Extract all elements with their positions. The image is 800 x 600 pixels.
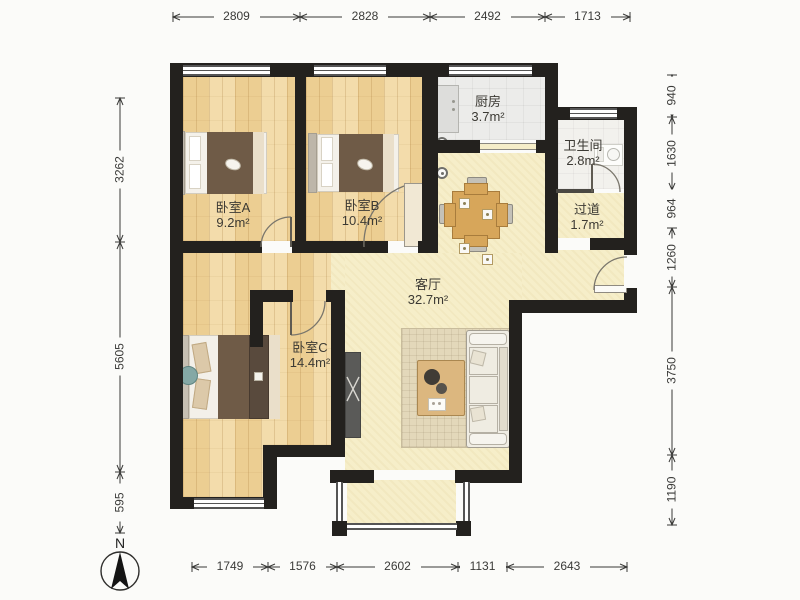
wall-bedrooms-bottom [292, 241, 388, 253]
bed-b-pillow [321, 163, 333, 187]
entry-door-opening [624, 255, 637, 288]
wall-bedroom-c-door [326, 290, 345, 302]
dimension-label-right-1: 1630 [665, 134, 680, 172]
plate-icon [459, 198, 470, 209]
plate-icon [459, 243, 470, 254]
dimension-line [173, 14, 180, 20]
dimension-line [669, 287, 675, 294]
room-name: 厨房 [443, 94, 533, 109]
floor-corridor [331, 253, 345, 290]
bed-c-dresser-knob [254, 372, 263, 381]
room-area: 1.7m² [542, 217, 632, 232]
wall-bedroom-c-door [263, 290, 293, 302]
dimension-line [117, 465, 123, 472]
bay-window-bottom [347, 523, 457, 530]
room-area: 2.8m² [538, 153, 628, 168]
window-kitchen [449, 65, 532, 76]
dimension-line [507, 564, 514, 570]
wall-bathroom-bottom [556, 189, 594, 193]
dimension-line [117, 235, 123, 242]
dimension-label-right-2: 964 [665, 190, 680, 228]
compass-circle [101, 552, 139, 590]
room-name: 卫生间 [538, 138, 628, 153]
plate-icon [482, 209, 493, 220]
wall-bedroom-divider [295, 63, 306, 253]
wall-spur [250, 290, 263, 347]
dimension-line [669, 518, 675, 525]
dimension-line [669, 455, 675, 462]
dimension-label-left-2: 595 [113, 483, 128, 521]
dimension-line [623, 14, 630, 20]
dimension-line [268, 564, 275, 570]
wall-entry-bottom [512, 300, 637, 313]
room-area: 14.4m² [265, 355, 355, 370]
table-decor [436, 383, 447, 394]
room-name: 客厅 [383, 277, 473, 292]
dimension-line [330, 564, 337, 570]
dimension-line [293, 14, 300, 20]
room-area: 9.2m² [188, 215, 278, 230]
room-name: 卧室B [317, 198, 407, 213]
wall-living-right [509, 300, 522, 483]
dimension-label-bottom-1: 1576 [280, 559, 326, 574]
tray-dot [438, 402, 441, 405]
dimension-line [261, 564, 268, 570]
dimension-label-left-1: 5605 [113, 338, 128, 376]
dimension-label-bottom-3: 1131 [460, 559, 506, 574]
bay-window-post [456, 521, 471, 536]
table-tray [428, 398, 446, 411]
dimension-label-top-1: 2828 [342, 9, 388, 24]
label-bedroom-a: 卧室A 9.2m² [188, 200, 278, 230]
wall-kitchen-bottom [438, 140, 480, 153]
label-living-room: 客厅 32.7m² [383, 277, 473, 307]
compass-needle-icon [111, 552, 129, 589]
bed-b-runner [383, 134, 394, 192]
bed-c-blanket [218, 335, 249, 419]
room-area: 10.4m² [317, 213, 407, 228]
room-name: 过道 [542, 202, 632, 217]
floor-bay-window [347, 480, 456, 523]
dimension-line [669, 228, 675, 235]
dimension-line [430, 14, 437, 20]
compass-north-label: N [111, 535, 129, 551]
dimension-label-left-0: 3262 [113, 151, 128, 189]
sofa-pillow [470, 406, 486, 422]
plate-icon [482, 254, 493, 265]
dimension-label-right-5: 1190 [665, 471, 680, 509]
label-bathroom: 卫生间 2.8m² [538, 138, 628, 168]
bed-a-pillow [189, 164, 201, 189]
tray-dot [432, 402, 435, 405]
room-area: 32.7m² [383, 292, 473, 307]
dimension-line [117, 98, 123, 105]
dimension-label-top-0: 2809 [214, 9, 260, 24]
dimension-line [669, 448, 675, 455]
bay-window-post [332, 521, 347, 536]
wall-bedroom-c-right [331, 290, 345, 457]
floor-plan: N 卧室A 9.2m² 卧室B 10.4m² 厨房 3.7m² 卫生间 2.8m… [0, 0, 800, 600]
label-bedroom-b: 卧室B 10.4m² [317, 198, 407, 228]
dining-table-tab [445, 204, 455, 226]
dimension-line [423, 14, 430, 20]
dimension-label-right-4: 3750 [665, 352, 680, 390]
bay-window-left [336, 482, 343, 521]
dimension-label-bottom-2: 2602 [375, 559, 421, 574]
dimension-line [117, 242, 123, 249]
table-decor [424, 369, 440, 385]
window-bathroom [570, 108, 617, 119]
bed-a-pillow [189, 136, 201, 161]
dimension-line [669, 117, 675, 124]
dimension-line [300, 14, 307, 20]
dimension-line [117, 526, 123, 533]
bed-a-runner [253, 132, 264, 194]
window-bedroom-a [183, 65, 270, 76]
sofa-armrest [469, 433, 507, 445]
dimension-label-bottom-4: 2643 [544, 559, 590, 574]
floor-bedroom-c-lower [183, 443, 263, 497]
kitchen-threshold [480, 143, 536, 150]
dimension-label-right-0: 940 [665, 77, 680, 115]
wall-hallway-bottom [590, 238, 624, 250]
entry-door-leaf [594, 285, 627, 293]
dimension-line [337, 564, 344, 570]
dimension-line [451, 564, 458, 570]
wall-left [170, 63, 183, 509]
sofa-cushion [469, 376, 498, 404]
dining-table-tab [497, 204, 507, 226]
window-bedroom-c [194, 498, 264, 509]
floor-entry [522, 250, 624, 303]
dimension-label-top-3: 1713 [565, 9, 611, 24]
bed-b-pillow [321, 137, 333, 161]
dimension-line [538, 14, 545, 20]
dimension-label-right-3: 1260 [665, 238, 680, 276]
room-name: 卧室A [188, 200, 278, 215]
dimension-line [669, 280, 675, 287]
label-kitchen: 厨房 3.7m² [443, 94, 533, 124]
room-area: 3.7m² [443, 109, 533, 124]
window-bedroom-b [314, 65, 386, 76]
sofa-armrest [469, 333, 507, 345]
dimension-line [192, 564, 199, 570]
wall-bedroom-b-kitchen [422, 63, 438, 253]
bay-window-right [463, 482, 470, 521]
room-name: 卧室C [265, 340, 355, 355]
label-bedroom-c: 卧室C 14.4m² [265, 340, 355, 370]
dimension-line [620, 564, 627, 570]
dimension-label-top-2: 2492 [465, 9, 511, 24]
dining-table-tab [465, 184, 487, 194]
dimension-line [545, 14, 552, 20]
label-hallway: 过道 1.7m² [542, 202, 632, 232]
sofa-backrest [499, 347, 508, 431]
dimension-label-bottom-0: 1749 [207, 559, 253, 574]
wall-bedrooms-bottom [170, 241, 262, 253]
dimension-line [117, 472, 123, 479]
bed-b-headboard [308, 133, 317, 193]
